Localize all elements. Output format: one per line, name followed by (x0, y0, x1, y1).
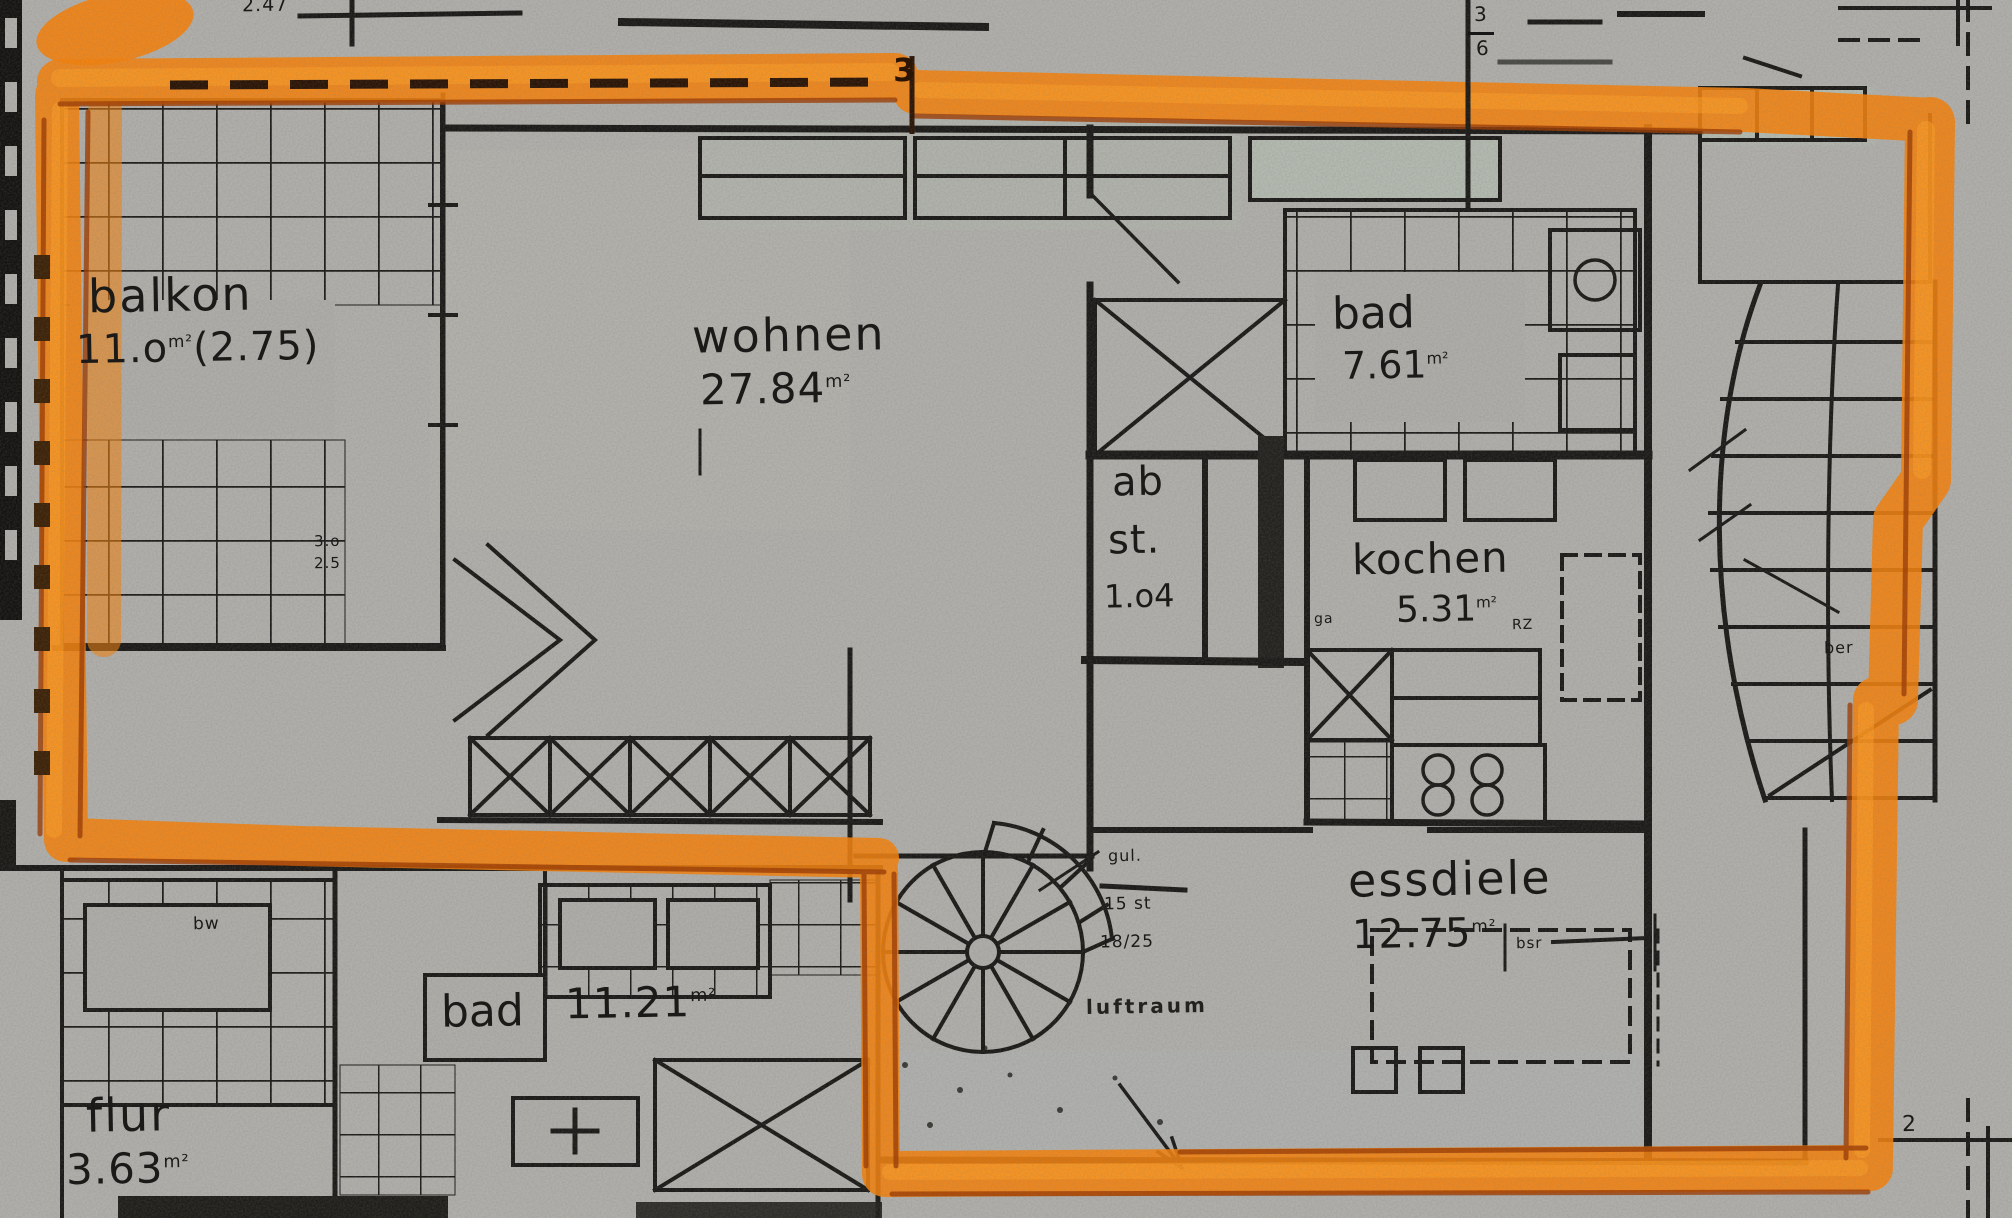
room-area-kochen: 5.31m² (1396, 591, 1498, 629)
stair-note-2: 15 st (1104, 896, 1152, 914)
stair-note-3: 18/25 (1100, 934, 1154, 952)
fraction-denominator: 6 (1476, 38, 1490, 58)
balkon-dim-1: 3.o (314, 534, 341, 549)
room-area-flur: 3.63m² (66, 1147, 190, 1191)
room-label-balkon: balkon (88, 271, 253, 320)
floorplan-drawing (0, 0, 2012, 1218)
stair-note-1: gul. (1108, 848, 1142, 865)
note-rz: RZ (1512, 618, 1534, 632)
room-area-bad-top: 7.61m² (1342, 345, 1449, 385)
room-area-balkon: 11.om²(2.75) (76, 326, 320, 370)
paper-grain (0, 0, 2012, 1218)
note-ga: ga (1314, 612, 1334, 626)
room-area-essdiele: 12.75m² (1352, 913, 1497, 956)
room-label-bad-top: bad (1332, 291, 1416, 336)
room-label-bad-bottom: bad (441, 989, 525, 1034)
room-area-abst: 1.o4 (1104, 579, 1175, 612)
room-label-kochen: kochen (1352, 537, 1509, 582)
room-label-essdiele: essdiele (1348, 854, 1552, 904)
fraction-bar (1468, 32, 1494, 35)
room-label-wohnen: wohnen (692, 310, 886, 359)
balkon-dim-2: 2.5 (314, 556, 341, 571)
floorplan-scan: balkon 11.om²(2.75) wohnen 27.84m² bad 7… (0, 0, 2012, 1218)
note-bw: bw (193, 916, 220, 933)
room-label-abst-1: ab (1112, 462, 1165, 503)
note-bsr: bsr (1516, 936, 1543, 951)
room-label-abst-2: st. (1108, 520, 1161, 561)
room-label-flur: flur (86, 1091, 172, 1138)
void-label-luftraum: luftraum (1086, 995, 1208, 1017)
room-area-bad-bottom: 11.21m² (565, 981, 717, 1026)
marker-top-3: 3 (893, 54, 916, 86)
fraction-numerator: 3 (1474, 4, 1488, 24)
dim-text-top-left: 2.47 (242, 0, 289, 15)
room-area-wohnen: 27.84m² (700, 367, 852, 412)
corner-number: 2 (1902, 1114, 1917, 1136)
note-ber: ber (1824, 640, 1854, 657)
